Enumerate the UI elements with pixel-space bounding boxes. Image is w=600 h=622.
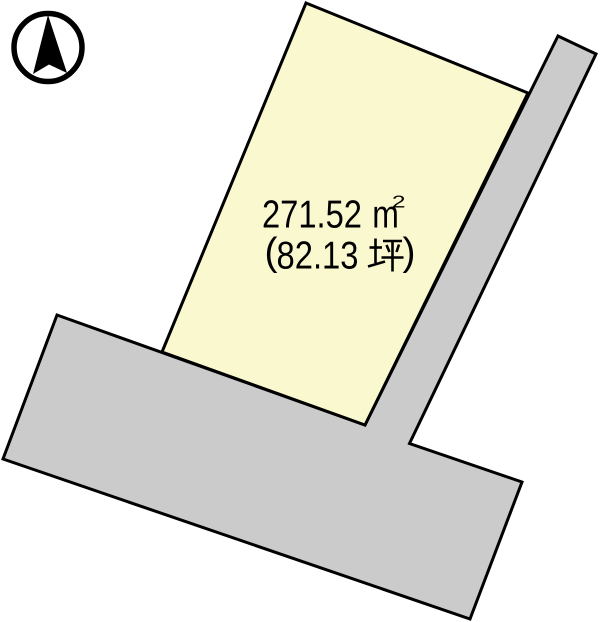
svg-text:): ) <box>403 231 416 274</box>
svg-text:82.13: 82.13 <box>277 235 359 278</box>
svg-text:2: 2 <box>392 192 406 212</box>
